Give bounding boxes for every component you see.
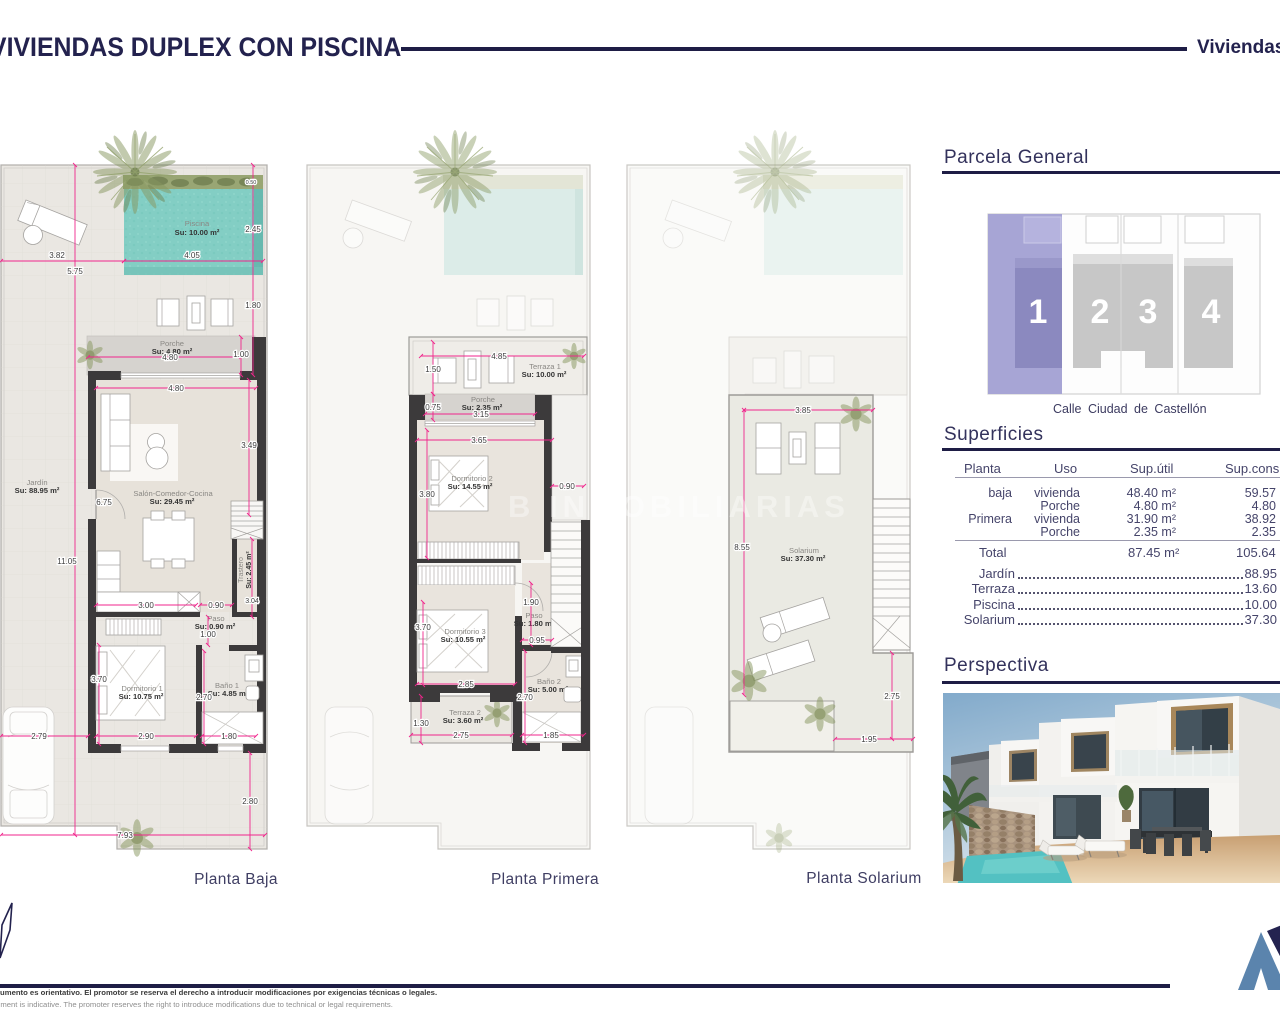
svg-text:1.00: 1.00 [233, 350, 249, 359]
svg-text:1.85: 1.85 [543, 731, 559, 740]
svg-text:2.79: 2.79 [31, 732, 47, 741]
svg-text:2.70: 2.70 [517, 693, 533, 702]
svg-text:Su: 14.55 m²: Su: 14.55 m² [448, 482, 493, 491]
svg-text:0.50: 0.50 [246, 180, 257, 186]
svg-text:Trastero: Trastero [238, 557, 245, 583]
svg-text:5.75: 5.75 [67, 267, 83, 276]
svg-text:3.82: 3.82 [49, 251, 65, 260]
svg-text:4: 4 [1202, 293, 1221, 331]
svg-text:2.70: 2.70 [196, 693, 212, 702]
svg-text:Piscina: Piscina [185, 219, 210, 228]
svg-text:3: 3 [1139, 293, 1158, 331]
svg-text:2.85: 2.85 [458, 680, 474, 689]
svg-text:2.75: 2.75 [453, 731, 469, 740]
svg-text:1.00: 1.00 [200, 630, 216, 639]
svg-text:3.49: 3.49 [241, 441, 257, 450]
svg-text:1.80: 1.80 [245, 301, 261, 310]
svg-text:Su: 1.80 m²: Su: 1.80 m² [514, 619, 555, 628]
svg-text:Su: 4.85 m²: Su: 4.85 m² [208, 689, 249, 698]
svg-text:Su: 5.00 m²: Su: 5.00 m² [528, 685, 569, 694]
svg-text:3.00: 3.00 [138, 601, 154, 610]
svg-text:Su: 88.95 m²: Su: 88.95 m² [15, 486, 60, 495]
svg-text:0.75: 0.75 [425, 403, 441, 412]
svg-text:2.75: 2.75 [884, 692, 900, 701]
svg-text:3.70: 3.70 [415, 623, 431, 632]
svg-text:Su: 29.45 m²: Su: 29.45 m² [150, 497, 195, 506]
svg-text:4.05: 4.05 [184, 251, 200, 260]
svg-text:3.85: 3.85 [795, 406, 811, 415]
svg-text:3.70: 3.70 [91, 675, 107, 684]
svg-text:1: 1 [1029, 293, 1048, 331]
svg-text:0.90: 0.90 [208, 601, 224, 610]
svg-text:3.65: 3.65 [471, 436, 487, 445]
svg-text:3.80: 3.80 [419, 490, 435, 499]
svg-text:4.80: 4.80 [168, 384, 184, 393]
svg-text:3.04: 3.04 [245, 598, 259, 605]
svg-text:7.93: 7.93 [117, 831, 133, 840]
svg-text:8.55: 8.55 [734, 543, 750, 552]
svg-text:2.90: 2.90 [138, 732, 154, 741]
svg-text:2.80: 2.80 [242, 797, 258, 806]
svg-text:6.75: 6.75 [96, 498, 112, 507]
svg-text:4.80: 4.80 [162, 353, 178, 362]
svg-text:Su: 3.60 m²: Su: 3.60 m² [443, 716, 484, 725]
svg-text:1.90: 1.90 [523, 598, 539, 607]
svg-text:Su: 10.75 m²: Su: 10.75 m² [119, 692, 164, 701]
svg-text:2.45: 2.45 [245, 225, 261, 234]
svg-text:Su: 10.00 m²: Su: 10.00 m² [175, 228, 220, 237]
svg-text:11.05: 11.05 [57, 557, 77, 566]
svg-text:0.95: 0.95 [529, 636, 545, 645]
svg-text:2: 2 [1091, 293, 1110, 331]
svg-text:1.50: 1.50 [425, 365, 441, 374]
svg-text:4.85: 4.85 [491, 352, 507, 361]
svg-text:1.30: 1.30 [413, 719, 429, 728]
svg-text:Su: 10.55 m²: Su: 10.55 m² [441, 635, 486, 644]
svg-text:Su: 10.00 m²: Su: 10.00 m² [522, 370, 567, 379]
svg-text:3.15: 3.15 [473, 410, 489, 419]
svg-text:Su: 37.30 m²: Su: 37.30 m² [781, 554, 826, 563]
svg-text:1.80: 1.80 [221, 732, 237, 741]
svg-text:1.95: 1.95 [861, 735, 877, 744]
